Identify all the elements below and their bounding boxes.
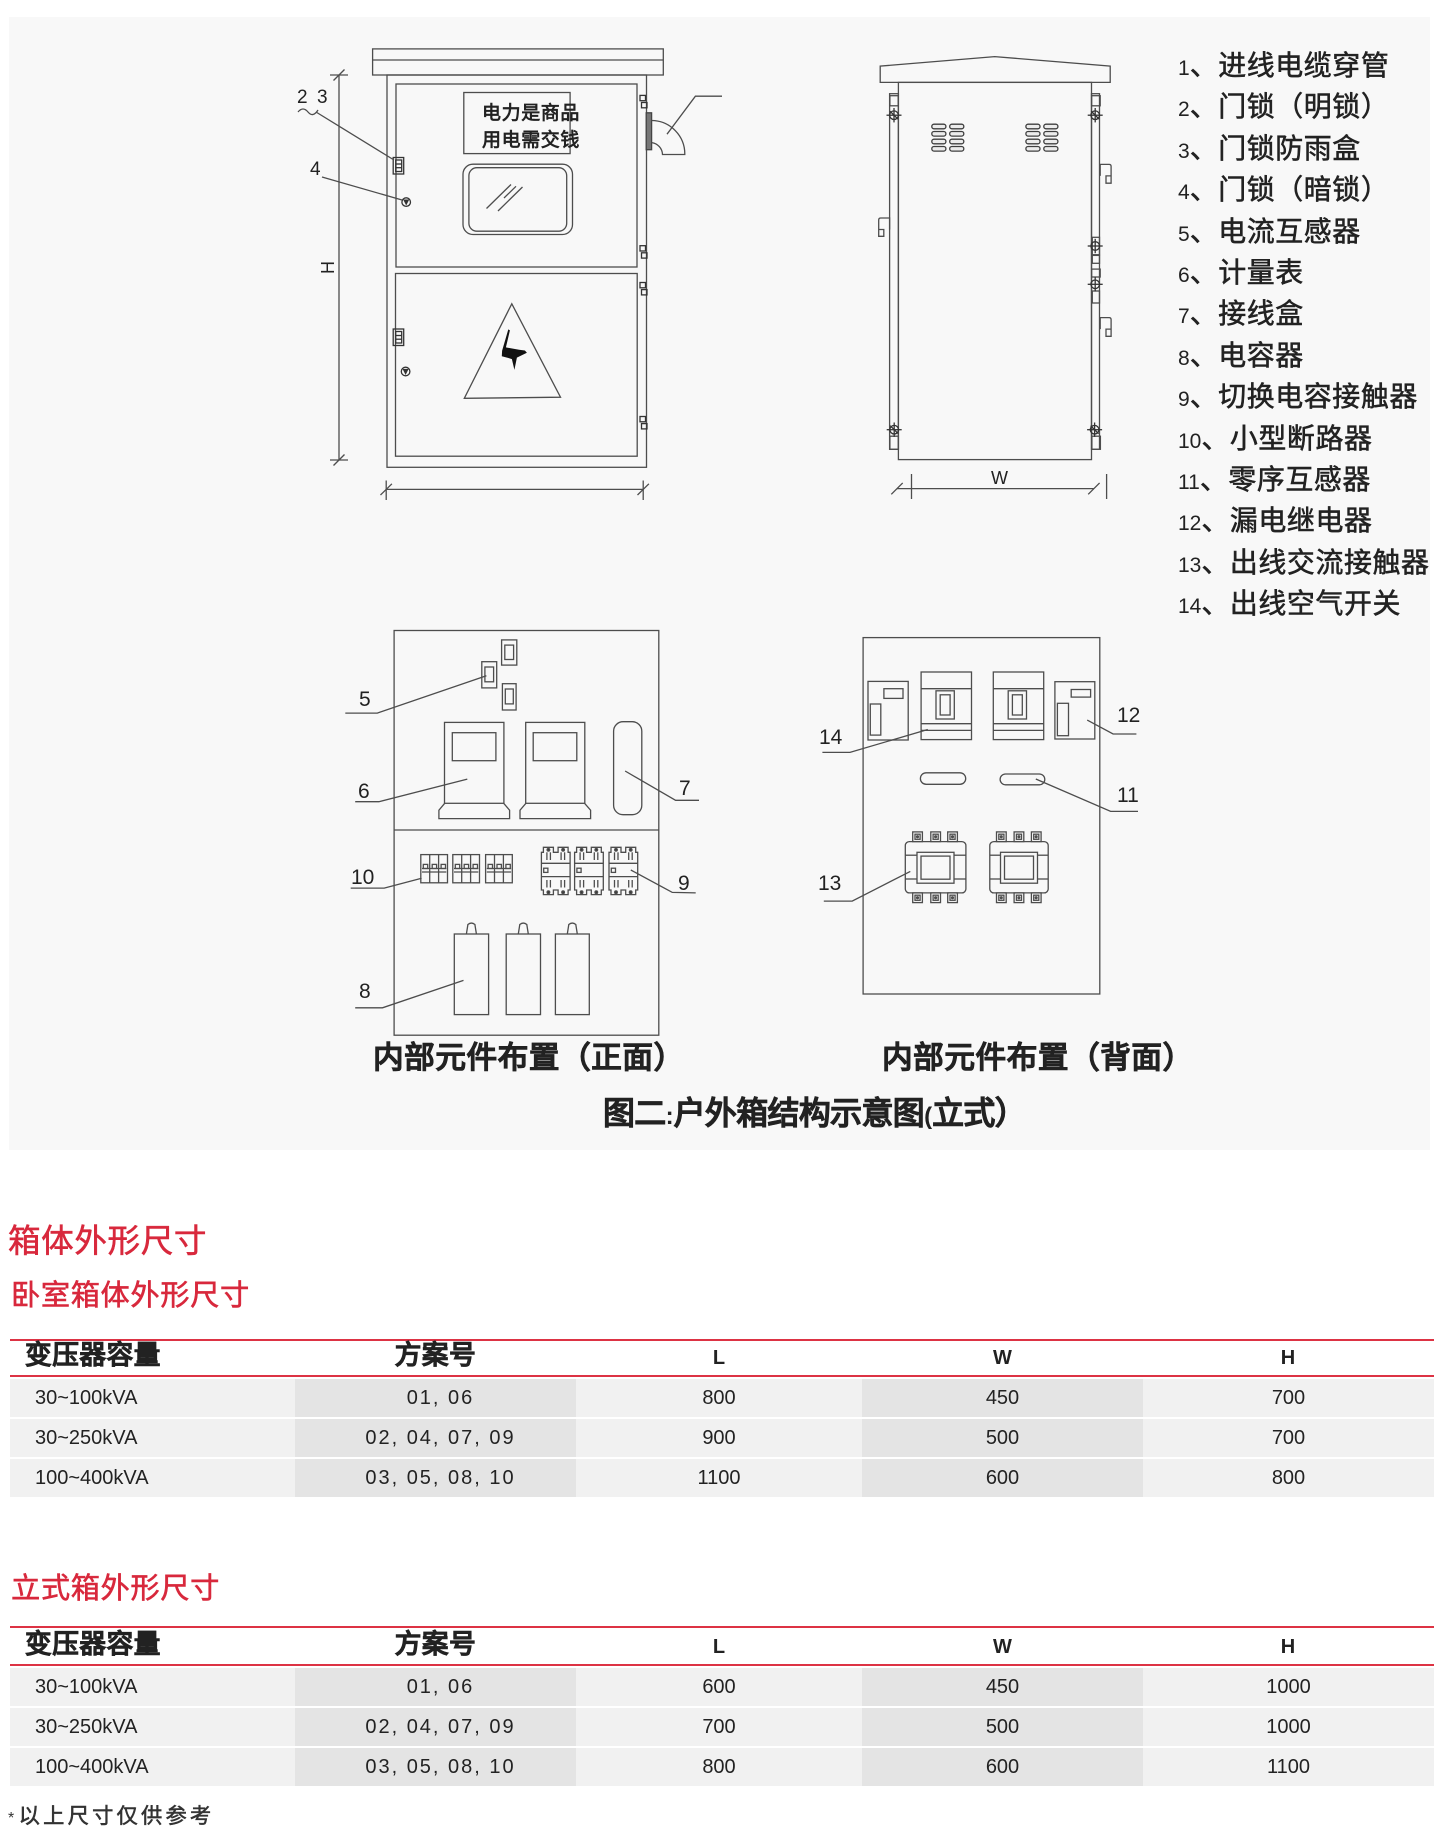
svg-text:8: 8 [359,980,371,1003]
svg-text:6: 6 [358,780,370,803]
svg-text:用电需交钱: 用电需交钱 [482,128,580,151]
svg-text:电力是商品: 电力是商品 [482,101,580,124]
svg-text:W: W [991,468,1008,488]
svg-text:11: 11 [1117,784,1139,807]
svg-text:5: 5 [359,688,371,711]
svg-text:10: 10 [351,866,374,889]
svg-text:H: H [318,261,338,274]
svg-text:3: 3 [317,87,328,108]
svg-text:2: 2 [297,87,308,108]
svg-text:9: 9 [678,872,690,895]
svg-text:13: 13 [818,872,841,895]
svg-text:14: 14 [819,726,843,749]
svg-text:7: 7 [679,777,691,800]
svg-text:12: 12 [1117,704,1140,727]
svg-text:4: 4 [310,159,321,180]
